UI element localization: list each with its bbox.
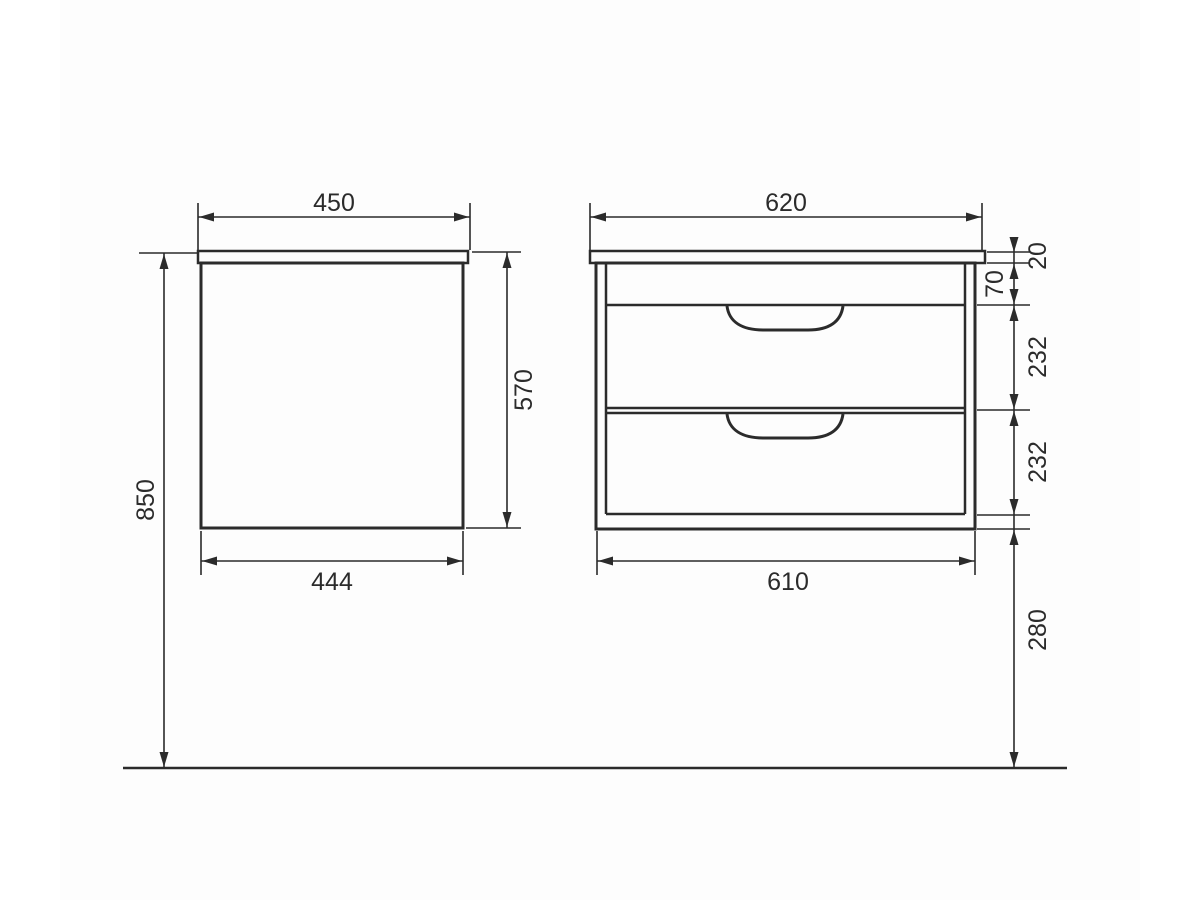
cabinet-dimension-drawing: 450 570 444 850 620 [0, 0, 1200, 900]
dim-label-850: 850 [132, 479, 160, 521]
dim-label-620: 620 [765, 189, 807, 217]
dim-label-280: 280 [1024, 609, 1052, 651]
dim-label-70: 70 [981, 270, 1009, 298]
dim-label-232-upper: 232 [1024, 336, 1052, 378]
dim-label-570: 570 [510, 369, 538, 411]
technical-drawing-page: 450 570 444 850 620 [0, 0, 1200, 900]
dim-label-444: 444 [311, 568, 353, 596]
dim-label-232-lower: 232 [1024, 441, 1052, 483]
dim-label-610: 610 [767, 568, 809, 596]
dim-label-20: 20 [1024, 242, 1052, 270]
drawing-area-background [60, 0, 1140, 900]
dim-label-450: 450 [313, 189, 355, 217]
